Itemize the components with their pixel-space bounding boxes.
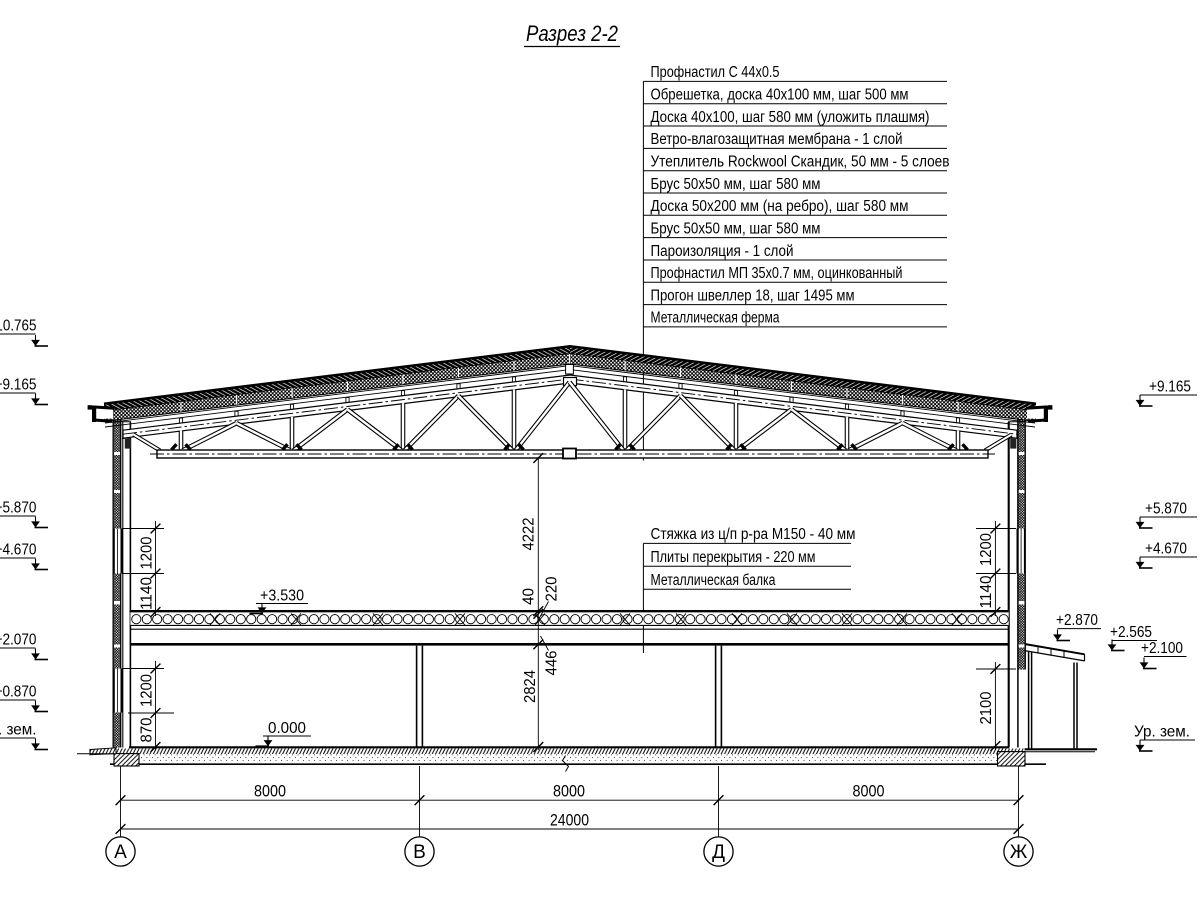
- svg-text:Профнастил С 44х0.5: Профнастил С 44х0.5: [651, 64, 780, 81]
- svg-text:40: 40: [521, 588, 538, 605]
- svg-text:Ж: Ж: [1010, 842, 1028, 863]
- svg-text:1140: 1140: [139, 577, 156, 610]
- svg-text:+9.165: +9.165: [0, 377, 37, 394]
- svg-text:1140: 1140: [978, 575, 995, 608]
- svg-text:446: 446: [543, 651, 560, 676]
- svg-text:Пароизоляция - 1 слой: Пароизоляция - 1 слой: [651, 243, 794, 260]
- svg-text:870: 870: [139, 717, 156, 742]
- svg-text:220: 220: [543, 576, 560, 601]
- svg-text:А: А: [114, 842, 127, 863]
- svg-text:4222: 4222: [521, 518, 538, 551]
- svg-text:+10.765: +10.765: [0, 318, 37, 335]
- svg-text:Ур. зем.: Ур. зем.: [1134, 724, 1190, 741]
- svg-text:0.000: 0.000: [268, 720, 306, 737]
- svg-text:Прогон швеллер 18, шаг 1495 мм: Прогон швеллер 18, шаг 1495 мм: [651, 287, 855, 304]
- svg-text:+2.565: +2.565: [1110, 624, 1152, 641]
- svg-text:1200: 1200: [139, 536, 156, 569]
- svg-text:24000: 24000: [550, 811, 589, 829]
- svg-text:Металлическая ферма: Металлическая ферма: [651, 310, 780, 327]
- svg-text:1200: 1200: [139, 674, 156, 707]
- svg-text:+2.870: +2.870: [1056, 612, 1098, 629]
- svg-text:2100: 2100: [978, 691, 995, 724]
- svg-text:В: В: [413, 842, 426, 863]
- svg-text:Плиты перекрытия - 220 мм: Плиты перекрытия - 220 мм: [651, 549, 816, 566]
- svg-text:Металлическая балка: Металлическая балка: [651, 572, 776, 589]
- svg-text:Доска 40х100, шаг 580 мм (улож: Доска 40х100, шаг 580 мм (уложить плашмя…: [651, 109, 930, 126]
- svg-text:+0.870: +0.870: [0, 684, 37, 701]
- svg-text:2824: 2824: [522, 670, 539, 703]
- svg-text:+3.530: +3.530: [260, 588, 304, 605]
- svg-text:+4.670: +4.670: [1145, 541, 1187, 558]
- svg-text:+4.670: +4.670: [0, 542, 37, 559]
- svg-text:+9.165: +9.165: [1149, 379, 1191, 396]
- svg-text:Профнастил МП 35х0.7 мм, оцинк: Профнастил МП 35х0.7 мм, оцинкованный: [651, 265, 903, 282]
- svg-text:8000: 8000: [254, 783, 286, 801]
- svg-text:+2.070: +2.070: [0, 632, 37, 649]
- svg-text:1200: 1200: [978, 533, 995, 566]
- svg-text:+2.100: +2.100: [1141, 640, 1183, 657]
- svg-text:8000: 8000: [553, 783, 585, 801]
- svg-text:Брус 50х50 мм, шаг 580 мм: Брус 50х50 мм, шаг 580 мм: [651, 220, 821, 237]
- svg-text:Ветро-влагозащитная мембрана -: Ветро-влагозащитная мембрана - 1 слой: [651, 131, 903, 148]
- svg-text:+5.870: +5.870: [0, 500, 37, 517]
- svg-text:Д: Д: [712, 842, 725, 863]
- svg-text:Разрез 2-2: Разрез 2-2: [526, 21, 618, 46]
- svg-text:+5.870: +5.870: [1145, 501, 1187, 518]
- svg-text:Утеплитель Rockwool Скандик, 5: Утеплитель Rockwool Скандик, 50 мм - 5 с…: [651, 154, 950, 171]
- svg-text:Доска 50х200 мм (на ребро), ша: Доска 50х200 мм (на ребро), шаг 580 мм: [651, 198, 909, 215]
- svg-text:Брус 50х50 мм, шаг 580 мм: Брус 50х50 мм, шаг 580 мм: [651, 176, 821, 193]
- svg-text:8000: 8000: [853, 783, 885, 801]
- svg-text:Обрешетка, доска 40х100 мм, ша: Обрешетка, доска 40х100 мм, шаг 500 мм: [651, 87, 909, 104]
- svg-text:Ур. зем.: Ур. зем.: [0, 722, 37, 739]
- svg-text:Стяжка из ц/п р-ра М150 - 40 м: Стяжка из ц/п р-ра М150 - 40 мм: [651, 526, 856, 543]
